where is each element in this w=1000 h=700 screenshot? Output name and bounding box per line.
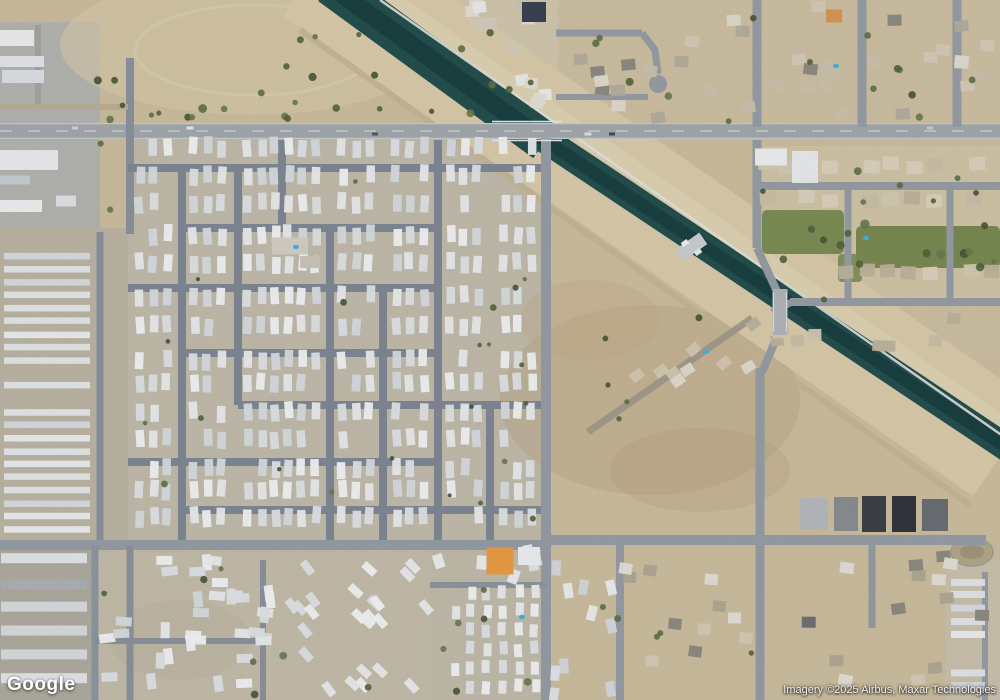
attribution-text: Imagery ©2025 Airbus, Maxar Technologies bbox=[783, 684, 996, 696]
map-viewport[interactable]: Google Imagery ©2025 Airbus, Maxar Techn… bbox=[0, 0, 1000, 700]
grain-texture bbox=[0, 0, 1000, 700]
satellite-canvas[interactable] bbox=[0, 0, 1000, 700]
google-logo[interactable]: Google bbox=[7, 674, 75, 696]
